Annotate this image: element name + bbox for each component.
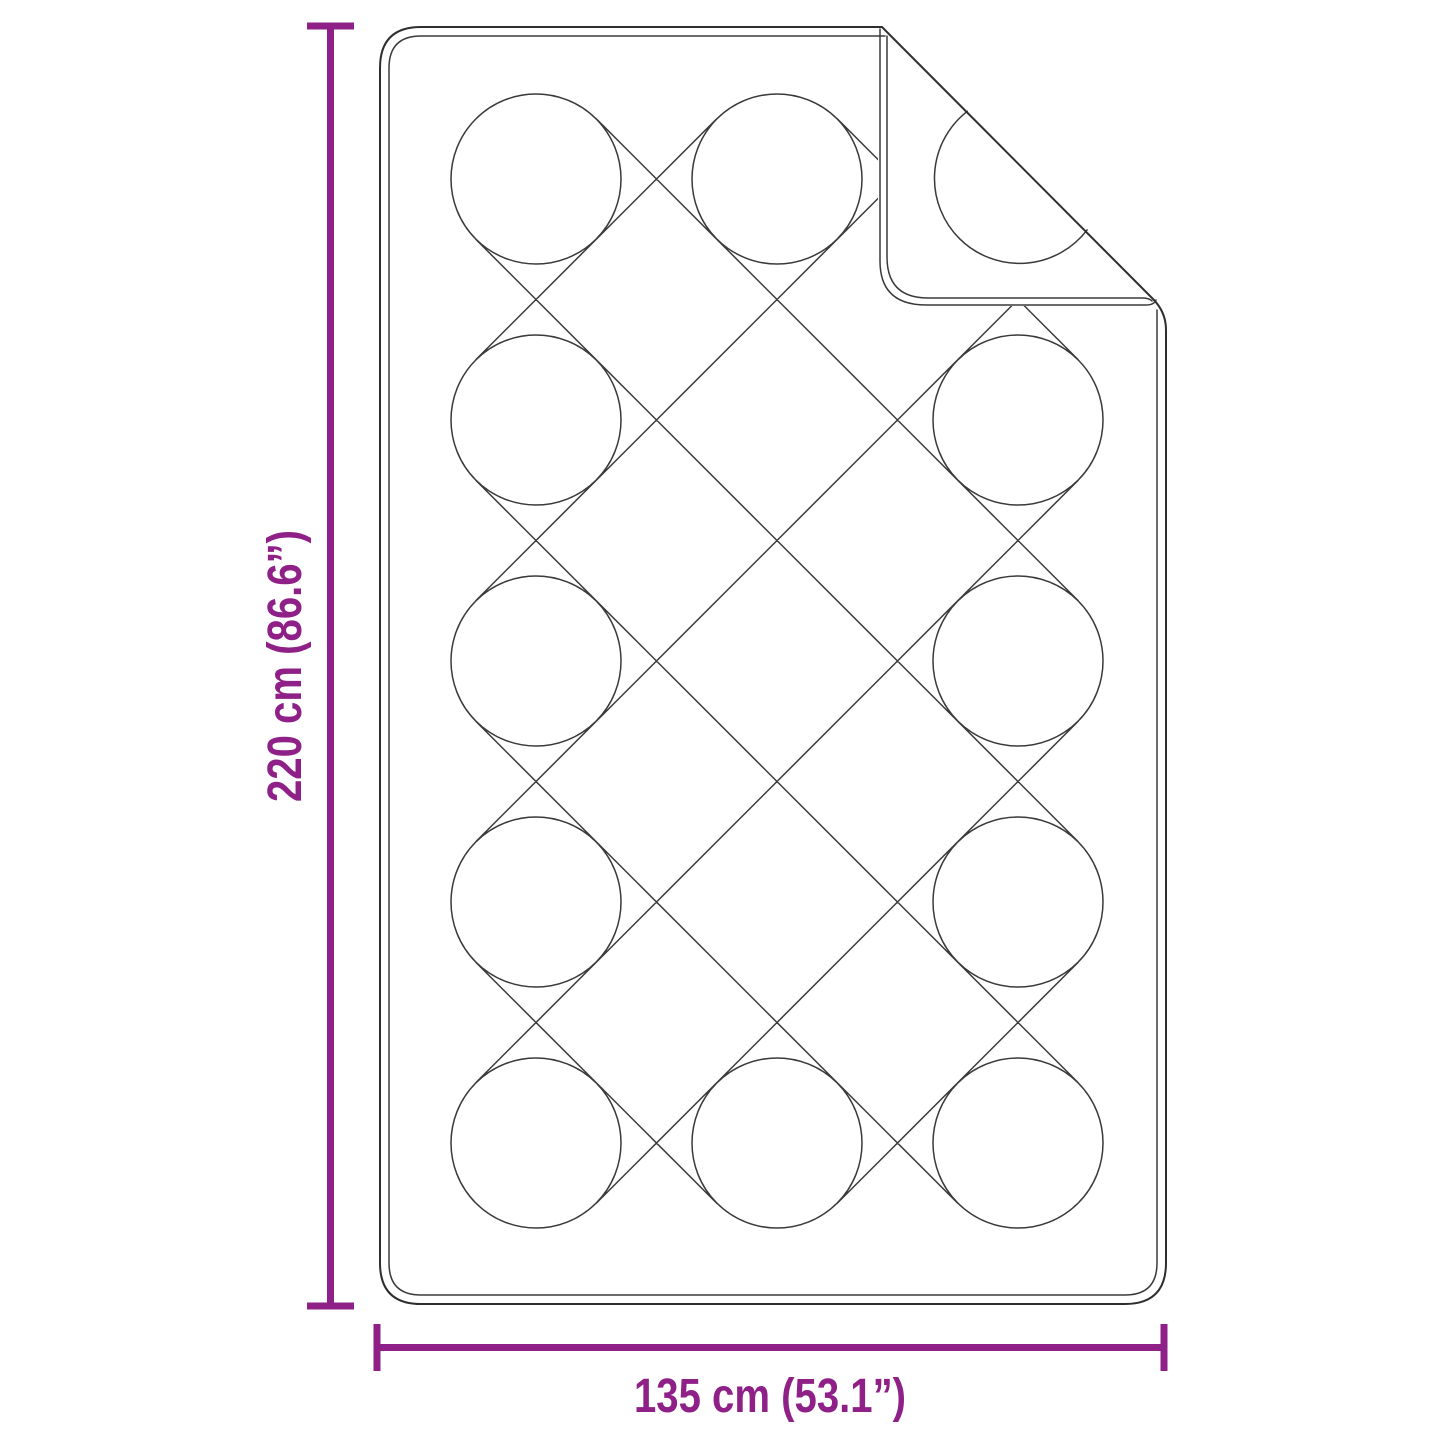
height-dimension-label: 220 cm (86.6”) [259,530,312,802]
width-dimension: 135 cm (53.1”) [377,1324,1164,1423]
product-dimension-diagram: 220 cm (86.6”) 135 cm (53.1”) [0,0,1445,1445]
diagram-canvas: 220 cm (86.6”) 135 cm (53.1”) [0,0,1445,1445]
width-dimension-label: 135 cm (53.1”) [634,1370,906,1423]
height-dimension: 220 cm (86.6”) [259,26,354,1306]
